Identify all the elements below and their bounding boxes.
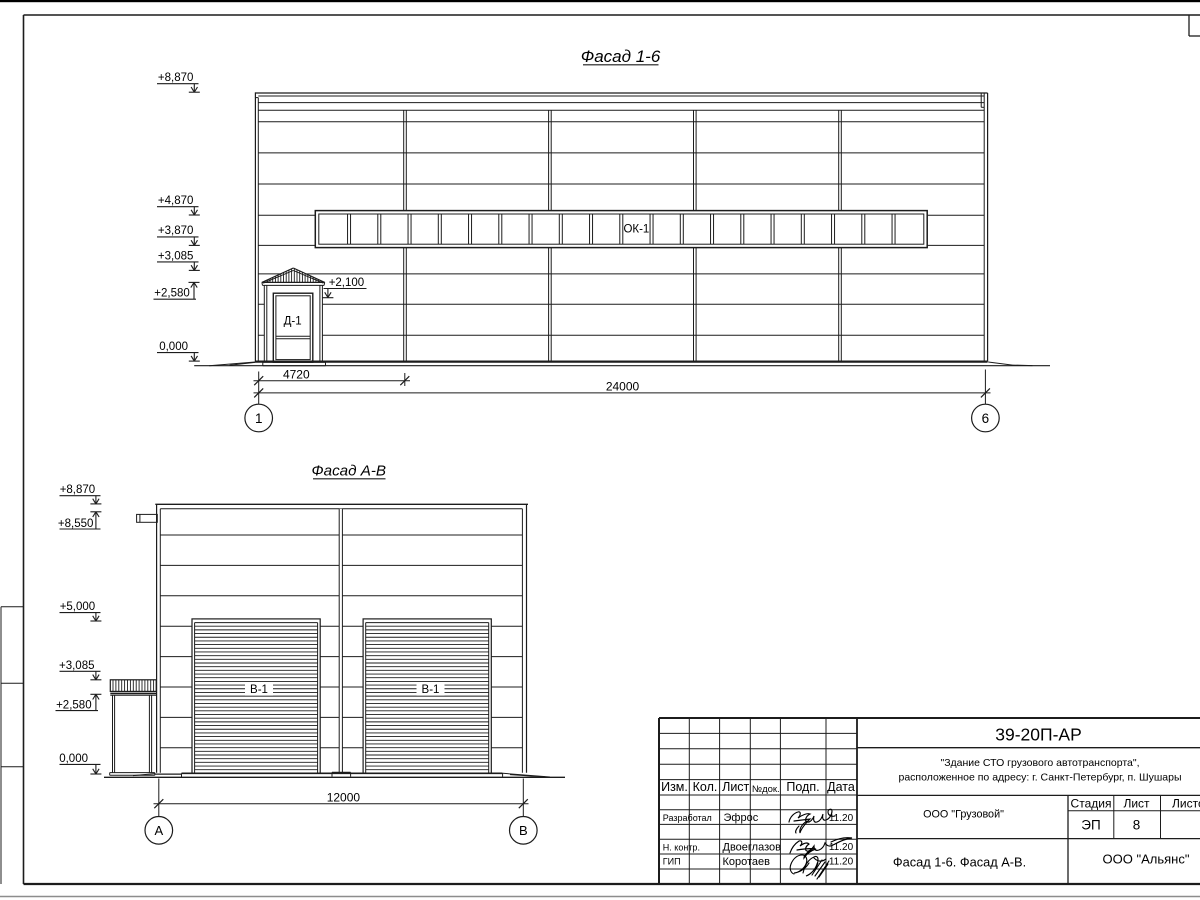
svg-text:Фасад А-В: Фасад А-В <box>312 463 387 480</box>
svg-text:Подп.: Подп. <box>786 780 819 794</box>
svg-text:Дата: Дата <box>827 780 855 794</box>
svg-text:+2,580: +2,580 <box>56 700 92 712</box>
svg-text:В: В <box>519 823 528 838</box>
svg-text:+8,870: +8,870 <box>158 72 194 84</box>
svg-text:+2,580: +2,580 <box>154 288 190 300</box>
svg-text:Фасад 1-6: Фасад 1-6 <box>581 47 661 66</box>
svg-text:Коротаев: Коротаев <box>723 856 771 868</box>
svg-text:11.20: 11.20 <box>829 842 854 853</box>
svg-text:+4,870: +4,870 <box>158 195 194 207</box>
svg-text:А: А <box>154 823 163 838</box>
svg-text:В-1: В-1 <box>422 684 440 696</box>
svg-text:Лист: Лист <box>722 780 749 794</box>
svg-text:24000: 24000 <box>606 380 640 394</box>
svg-text:8: 8 <box>1133 818 1141 833</box>
svg-text:ЭП: ЭП <box>1081 818 1100 833</box>
svg-text:"Здание СТО грузового автотран: "Здание СТО грузового автотранспорта", <box>940 757 1139 769</box>
svg-text:ООО "Грузовой": ООО "Грузовой" <box>923 809 1004 821</box>
svg-text:39-20П-АР: 39-20П-АР <box>995 725 1082 745</box>
svg-text:0,000: 0,000 <box>59 753 88 765</box>
svg-text:ООО "Альянс": ООО "Альянс" <box>1103 852 1190 867</box>
svg-text:Стадия: Стадия <box>1071 796 1112 810</box>
svg-text:Изм.: Изм. <box>661 780 688 794</box>
svg-text:Д-1: Д-1 <box>284 315 302 327</box>
svg-text:Фасад 1-6. Фасад А-В.: Фасад 1-6. Фасад А-В. <box>893 855 1026 870</box>
svg-text:11.20: 11.20 <box>829 856 854 867</box>
svg-text:ГИП: ГИП <box>663 857 681 867</box>
svg-text:0,000: 0,000 <box>159 341 188 353</box>
svg-text:+3,085: +3,085 <box>59 660 95 672</box>
svg-text:ОК-1: ОК-1 <box>623 223 649 235</box>
svg-text:+8,550: +8,550 <box>58 518 94 530</box>
svg-text:+2,100: +2,100 <box>329 277 365 289</box>
svg-text:В-1: В-1 <box>250 684 268 696</box>
svg-text:11.20: 11.20 <box>829 813 854 824</box>
svg-text:1: 1 <box>255 411 263 426</box>
svg-text:расположенное по адресу: г. Са: расположенное по адресу: г. Санкт-Петерб… <box>899 771 1182 783</box>
svg-text:Лист: Лист <box>1123 796 1150 810</box>
svg-text:+3,870: +3,870 <box>158 225 194 237</box>
svg-text:Эфрос: Эфрос <box>724 812 759 824</box>
svg-text:Разработал: Разработал <box>663 813 712 823</box>
svg-text:+8,870: +8,870 <box>60 484 96 496</box>
svg-text:+5,000: +5,000 <box>60 601 96 613</box>
svg-text:Двоеглазов: Двоеглазов <box>723 842 782 854</box>
svg-text:+3,085: +3,085 <box>158 250 194 262</box>
svg-text:4720: 4720 <box>283 367 310 381</box>
svg-text:№док.: №док. <box>752 784 780 795</box>
svg-text:Кол.: Кол. <box>693 780 718 794</box>
svg-text:Листов: Листов <box>1172 796 1200 810</box>
svg-text:Н. контр.: Н. контр. <box>663 842 700 852</box>
svg-text:6: 6 <box>982 411 990 426</box>
svg-text:12000: 12000 <box>327 791 361 805</box>
